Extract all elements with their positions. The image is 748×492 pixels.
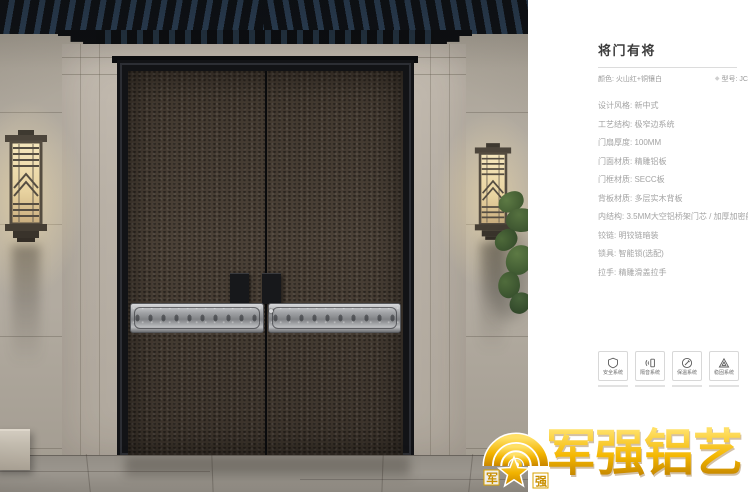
feature-caption-line (635, 385, 665, 387)
spec-item: 设计风格: 新中式 (598, 102, 748, 111)
spec-item: 工艺结构: 极窄边系统 (598, 121, 748, 130)
portal-groove (99, 44, 100, 458)
carved-band-right (268, 303, 402, 333)
emblem-char-left: 军 (486, 471, 498, 486)
feature-safety: 安全系统 (598, 351, 628, 387)
sound-insulation-icon (644, 357, 656, 369)
portal-groove (430, 44, 431, 458)
spec-item: 铰链: 明铰链暗装 (598, 232, 748, 241)
spec-item: 门扇厚度: 100MM (598, 139, 748, 148)
feature-badges: 安全系统 隔音系统 保温系统 (598, 351, 739, 387)
wall-joint (466, 112, 528, 113)
carved-band-engraving (272, 307, 398, 329)
feature-label: 保温系统 (677, 371, 697, 376)
door-frame (117, 60, 414, 458)
spec-item: 锁具: 智能锁(选配) (598, 250, 748, 259)
shield-icon (607, 357, 619, 369)
subtitle-row: 颜色: 火山红+铜镶白 ◆ 型号: JC (598, 74, 748, 84)
spec-item: 门面材质: 精雕铝板 (598, 158, 748, 167)
potted-plant (492, 190, 528, 330)
wall-lantern-left (4, 130, 48, 242)
feature-caption-line (598, 385, 628, 387)
floor-joint (86, 454, 91, 492)
poster: 将门有将 颜色: 火山红+铜镶白 ◆ 型号: JC 设计风格: 新中式 工艺结构… (0, 0, 748, 492)
carved-band-engraving (134, 307, 260, 329)
model-diamond-icon: ◆ (715, 76, 720, 82)
keyhole-knob (269, 309, 273, 313)
lamp-cast-shadow-left (12, 245, 40, 365)
portal-groove (80, 44, 81, 458)
stability-icon (718, 357, 730, 369)
feature-caption-line (709, 385, 739, 387)
title-divider (598, 67, 737, 68)
spec-item: 门框材质: SECC板 (598, 176, 748, 185)
door-center-seam (265, 71, 267, 455)
roof-eave (0, 0, 528, 34)
model-label: 型号: JC (722, 74, 748, 84)
product-info-panel: 将门有将 颜色: 火山红+铜镶白 ◆ 型号: JC 设计风格: 新中式 工艺结构… (598, 40, 748, 287)
feature-box: 安全系统 (598, 351, 628, 381)
feature-soundproof: 隔音系统 (635, 351, 665, 387)
model-group: ◆ 型号: JC (715, 74, 748, 84)
carved-silver-band (128, 303, 403, 331)
stone-step (0, 429, 30, 470)
door-handle-left (230, 273, 249, 304)
wall-joint (0, 112, 62, 113)
feature-label: 隔音系统 (640, 371, 660, 376)
thermal-seal-icon (681, 357, 693, 369)
feature-label: 安全系统 (603, 371, 623, 376)
door-leaves (128, 71, 403, 455)
feature-box: 隔音系统 (635, 351, 665, 381)
rafters-right (264, 0, 528, 34)
color-label: 颜色: 火山红+铜镶白 (598, 74, 662, 84)
feature-label: 稳固系统 (714, 371, 734, 376)
feature-stability: 稳固系统 (709, 351, 739, 387)
door-floor-shadow (125, 456, 410, 476)
feature-box: 保温系统 (672, 351, 702, 381)
brand-emblem: 军 强 (482, 420, 550, 492)
entrance-render (0, 0, 528, 492)
feature-thermal: 保温系统 (672, 351, 702, 387)
spec-item: 拉手: 精雕滑盖拉手 (598, 269, 748, 278)
spec-item: 背板材质: 多层实木背板 (598, 195, 748, 204)
spec-list: 设计风格: 新中式 工艺结构: 极窄边系统 门扇厚度: 100MM 门面材质: … (598, 102, 748, 277)
door-handle-right (262, 273, 281, 304)
carved-band-left (130, 303, 264, 333)
brand-name: 军强铝艺 (546, 426, 742, 481)
feature-box: 稳固系统 (709, 351, 739, 381)
spec-item: 内结构: 3.5MM大空铝桥架门芯 / 加厚加密航空铝芯 (598, 213, 748, 222)
portal-groove (449, 44, 450, 458)
rafters-left (0, 0, 264, 34)
floor-joint (468, 454, 473, 492)
product-title: 将门有将 (598, 40, 748, 59)
feature-caption-line (672, 385, 702, 387)
